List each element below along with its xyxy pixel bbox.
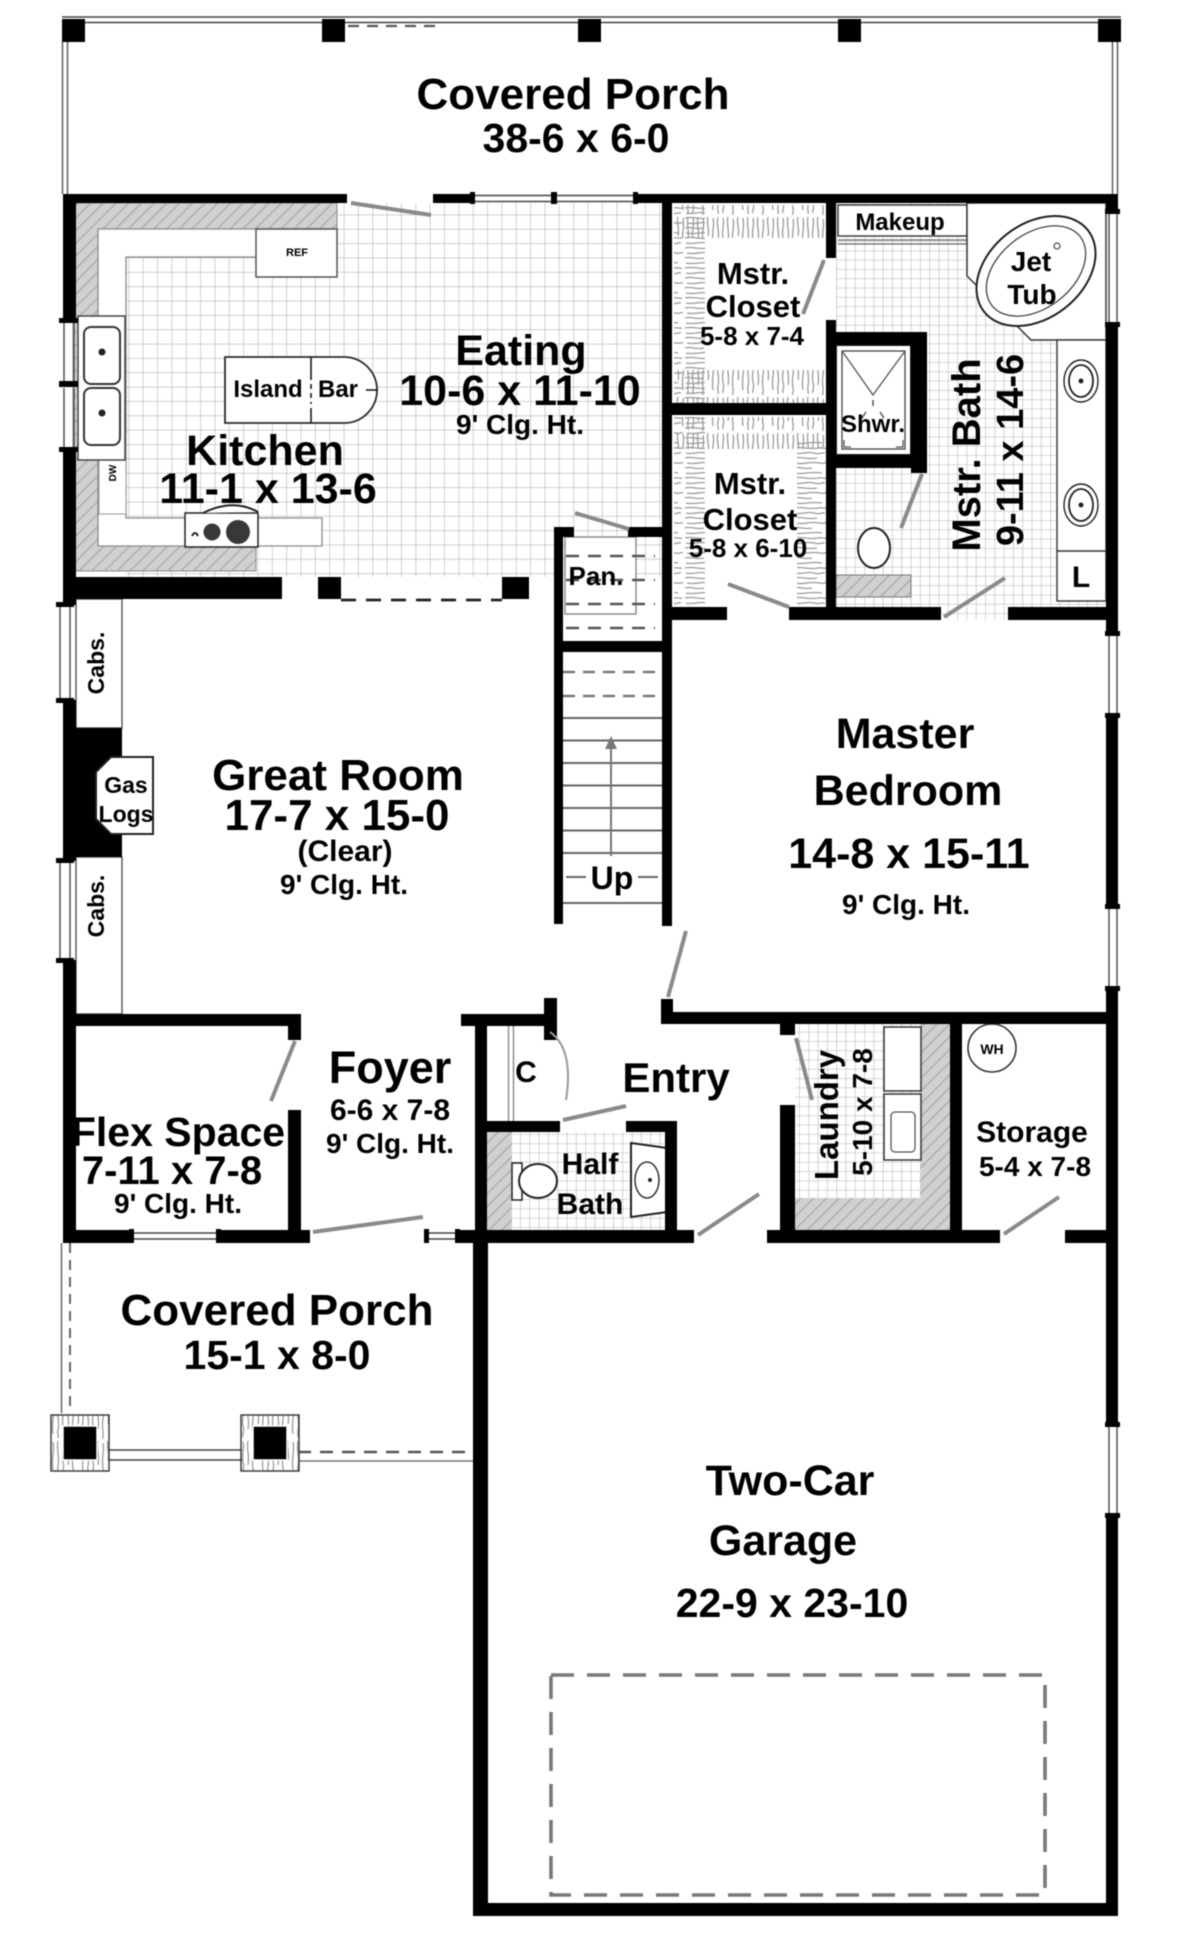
svg-text:22-9 x 23-10: 22-9 x 23-10	[676, 1580, 909, 1626]
svg-text:Tub: Tub	[1007, 279, 1056, 310]
svg-text:9' Clg. Ht.: 9' Clg. Ht.	[456, 409, 584, 440]
svg-text:11-1 x 13-6: 11-1 x 13-6	[159, 465, 377, 513]
svg-text:Entry: Entry	[622, 1054, 730, 1101]
svg-text:17-7 x 15-0: 17-7 x 15-0	[224, 791, 449, 840]
svg-text:9-11 x 14-6: 9-11 x 14-6	[990, 354, 1032, 546]
svg-text:7-11 x 7-8: 7-11 x 7-8	[82, 1149, 262, 1193]
svg-text:Pan.: Pan.	[569, 561, 624, 591]
svg-text:Bar: Bar	[318, 376, 358, 403]
svg-text:Covered Porch: Covered Porch	[121, 1286, 434, 1335]
svg-text:Up: Up	[591, 860, 634, 896]
svg-text:Makeup: Makeup	[855, 209, 944, 236]
svg-text:Storage: Storage	[976, 1116, 1088, 1149]
svg-text:9' Clg. Ht.: 9' Clg. Ht.	[280, 869, 408, 900]
svg-text:Cabs.: Cabs.	[83, 632, 109, 695]
svg-text:5-8 x 7-4: 5-8 x 7-4	[700, 321, 805, 351]
svg-text:5-8 x 6-10: 5-8 x 6-10	[689, 533, 808, 563]
svg-text:C: C	[515, 1056, 537, 1089]
svg-text:Jet: Jet	[1011, 246, 1051, 277]
svg-text:Bedroom: Bedroom	[814, 767, 1003, 815]
svg-text:10-6 x 11-10: 10-6 x 11-10	[399, 367, 640, 415]
svg-text:9' Clg. Ht.: 9' Clg. Ht.	[326, 1128, 454, 1159]
svg-text:5-10 x 7-8: 5-10 x 7-8	[847, 1048, 878, 1176]
svg-text:Mstr. Bath: Mstr. Bath	[945, 358, 989, 551]
svg-text:Half: Half	[562, 1148, 620, 1181]
svg-text:Closet: Closet	[703, 502, 798, 537]
svg-text:9' Clg. Ht.: 9' Clg. Ht.	[842, 889, 970, 920]
svg-text:14-8 x 15-11: 14-8 x 15-11	[788, 830, 1029, 878]
svg-text:Closet: Closet	[706, 289, 801, 324]
svg-text:L: L	[1072, 561, 1090, 594]
svg-text:Garage: Garage	[709, 1517, 857, 1565]
svg-text:Gas: Gas	[104, 772, 147, 798]
svg-text:Mstr.: Mstr.	[714, 466, 786, 501]
svg-text:38-6 x 6-0: 38-6 x 6-0	[483, 115, 670, 161]
svg-text:Mstr.: Mstr.	[717, 256, 789, 291]
svg-text:DW: DW	[108, 464, 119, 481]
svg-text:Cabs.: Cabs.	[83, 875, 109, 938]
svg-text:Foyer: Foyer	[329, 1042, 452, 1093]
svg-text:15-1 x 8-0: 15-1 x 8-0	[184, 1332, 371, 1378]
svg-text:(Clear): (Clear)	[297, 835, 392, 868]
svg-text:6-6 x 7-8: 6-6 x 7-8	[330, 1094, 450, 1127]
svg-text:Logs: Logs	[99, 801, 154, 827]
svg-text:Master: Master	[836, 710, 975, 758]
svg-text:Covered Porch: Covered Porch	[417, 70, 730, 119]
svg-text:WH: WH	[980, 1041, 1003, 1057]
svg-text:Bath: Bath	[557, 1188, 624, 1221]
svg-text:Laundry: Laundry	[808, 1049, 845, 1180]
svg-text:5-4 x 7-8: 5-4 x 7-8	[979, 1151, 1091, 1182]
svg-text:Two-Car: Two-Car	[706, 1457, 875, 1505]
svg-text:REF: REF	[286, 247, 308, 259]
svg-text:9' Clg. Ht.: 9' Clg. Ht.	[114, 1188, 242, 1219]
svg-text:Island: Island	[233, 376, 302, 403]
svg-text:Shwr.: Shwr.	[841, 411, 905, 438]
